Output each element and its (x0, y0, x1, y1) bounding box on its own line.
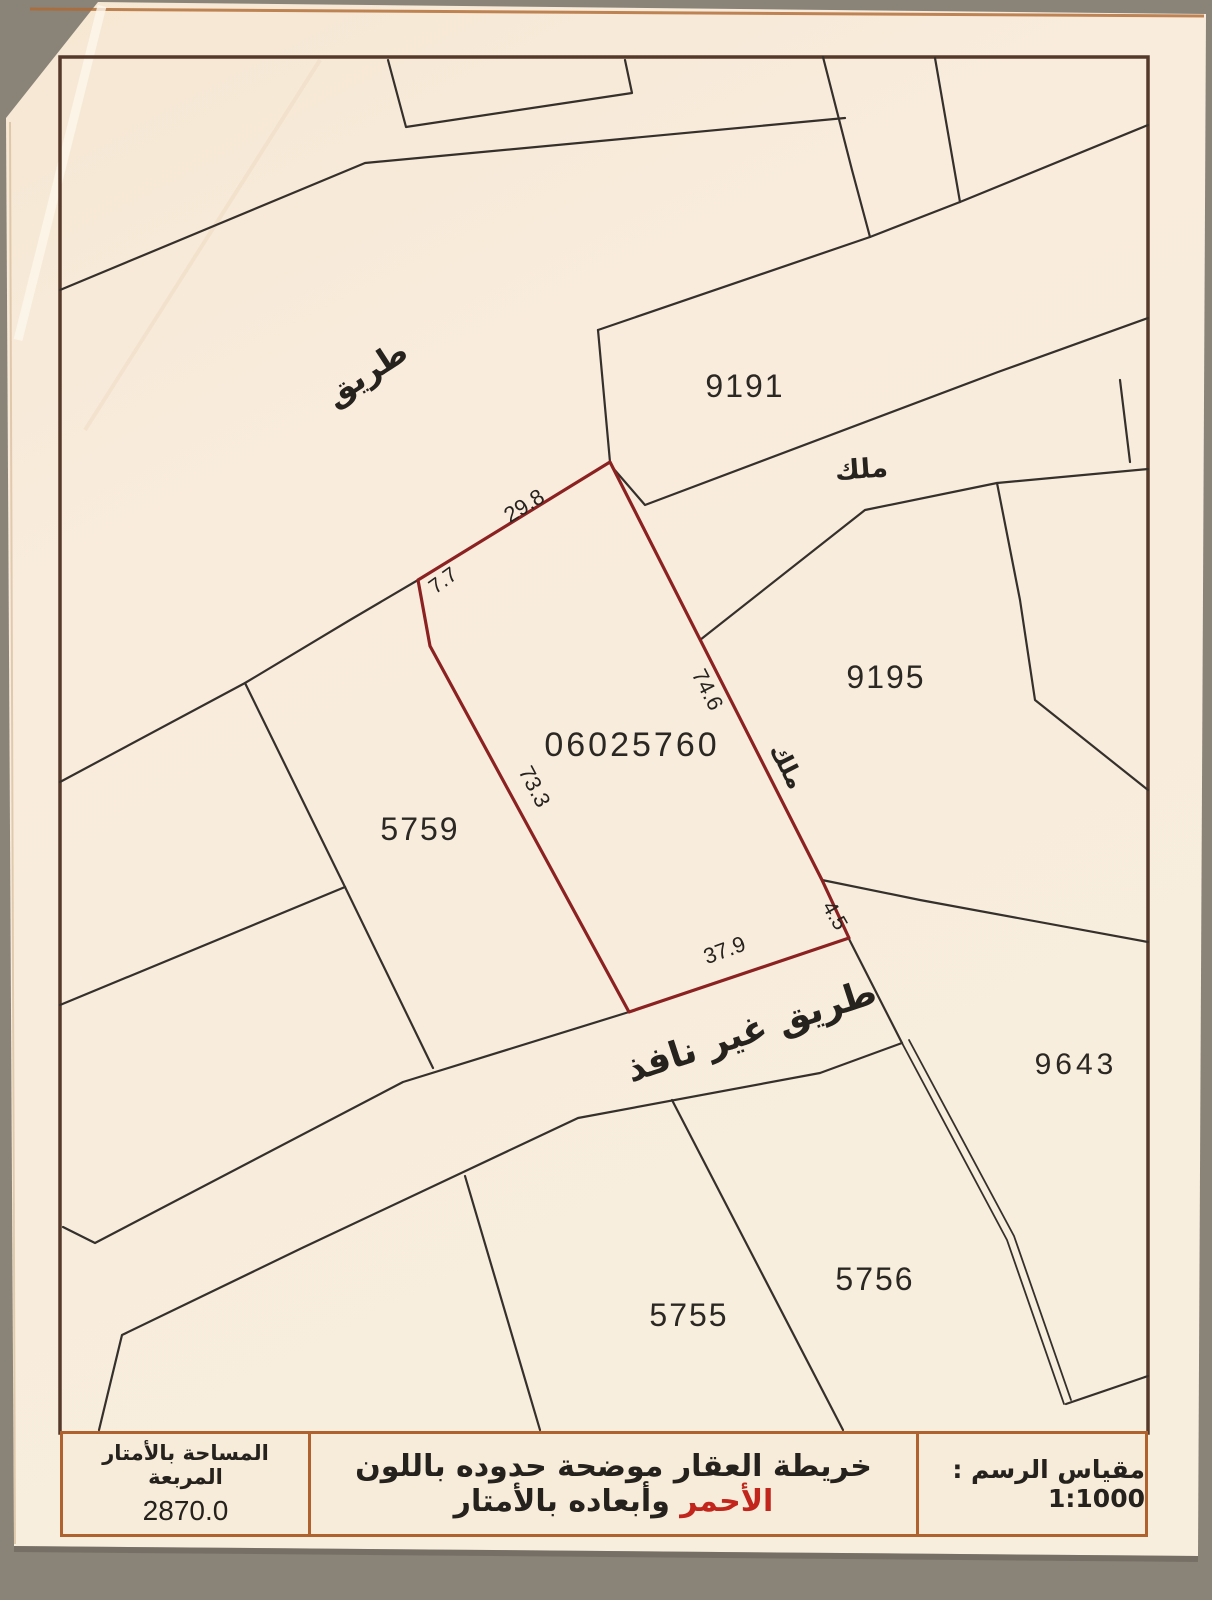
note-text-part2: وأبعاده بالأمتار (454, 1484, 670, 1519)
paper-sheet (6, 2, 1206, 1556)
legend-table: المساحة بالأمتار المربعة 2870.0 خريطة ال… (60, 1431, 1148, 1537)
owner-annotation-upper: ملك (834, 452, 889, 487)
note-text-red: الأحمر (680, 1484, 773, 1519)
map-note: خريطة العقار موضحة حدوده باللون الأحمر و… (311, 1449, 916, 1519)
area-value: 2870.0 (143, 1495, 229, 1527)
parcel-label-5755: 5755 (649, 1297, 728, 1333)
area-cell: المساحة بالأمتار المربعة 2870.0 (63, 1434, 311, 1534)
area-label: المساحة بالأمتار المربعة (63, 1441, 308, 1489)
parcel-label-5756: 5756 (835, 1261, 914, 1297)
note-cell: خريطة العقار موضحة حدوده باللون الأحمر و… (311, 1434, 919, 1534)
note-text-part1: خريطة العقار موضحة حدوده باللون (355, 1449, 872, 1484)
parcel-label-9195: 9195 (846, 659, 925, 695)
map-canvas: 06025760 9191 9195 5759 9643 5755 5756 2… (0, 0, 1212, 1600)
parcel-label-5759: 5759 (380, 811, 459, 847)
parcel-label-9191: 9191 (705, 368, 784, 404)
scale-label: مقياس الرسم : 1:1000 (919, 1455, 1145, 1513)
subject-plot-number: 06025760 (544, 726, 719, 764)
parcel-label-9643: 9643 (1035, 1048, 1118, 1081)
scanned-cadastral-map: 06025760 9191 9195 5759 9643 5755 5756 2… (0, 0, 1212, 1600)
scale-cell: مقياس الرسم : 1:1000 (919, 1434, 1145, 1534)
